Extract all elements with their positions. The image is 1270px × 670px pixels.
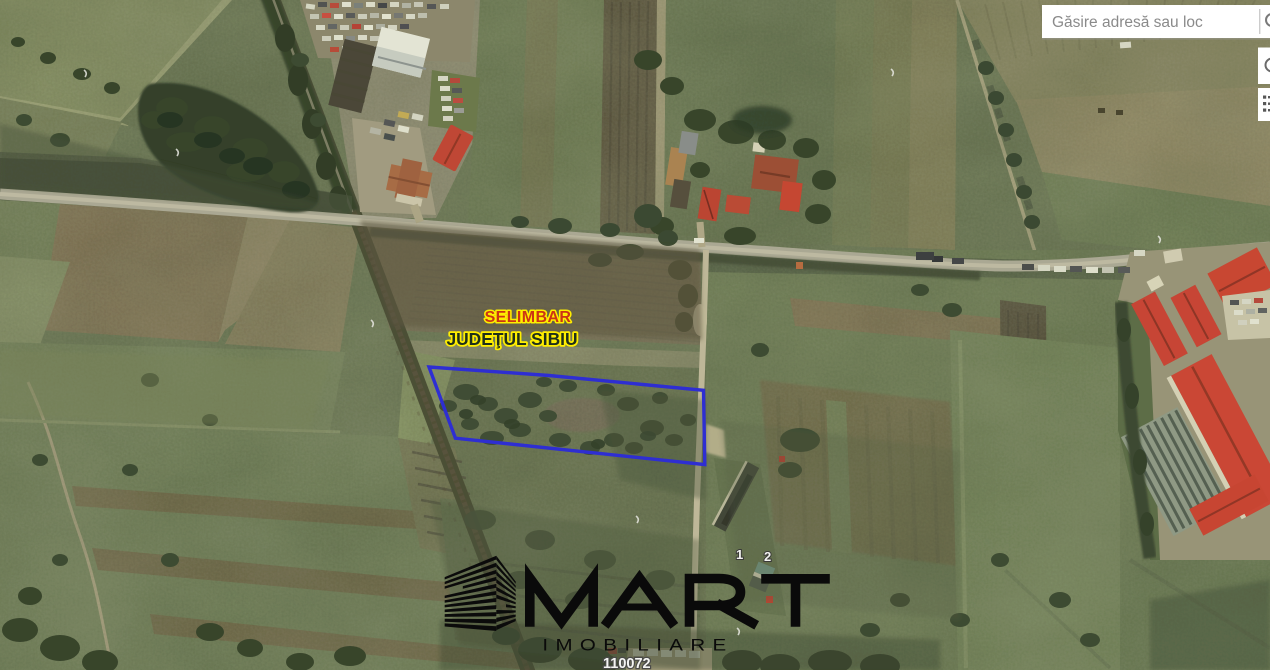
svg-text:Găsire adresă sau loc: Găsire adresă sau loc: [1052, 14, 1203, 31]
svg-text:110072: 110072: [603, 656, 651, 670]
svg-text:IMOBILIARE: IMOBILIARE: [542, 635, 733, 654]
svg-text:SELIMBAR: SELIMBAR: [485, 309, 572, 326]
svg-text:1: 1: [736, 547, 743, 562]
svg-text:JUDEŢUL SIBIU: JUDEŢUL SIBIU: [446, 329, 577, 349]
svg-text:2: 2: [764, 549, 771, 564]
